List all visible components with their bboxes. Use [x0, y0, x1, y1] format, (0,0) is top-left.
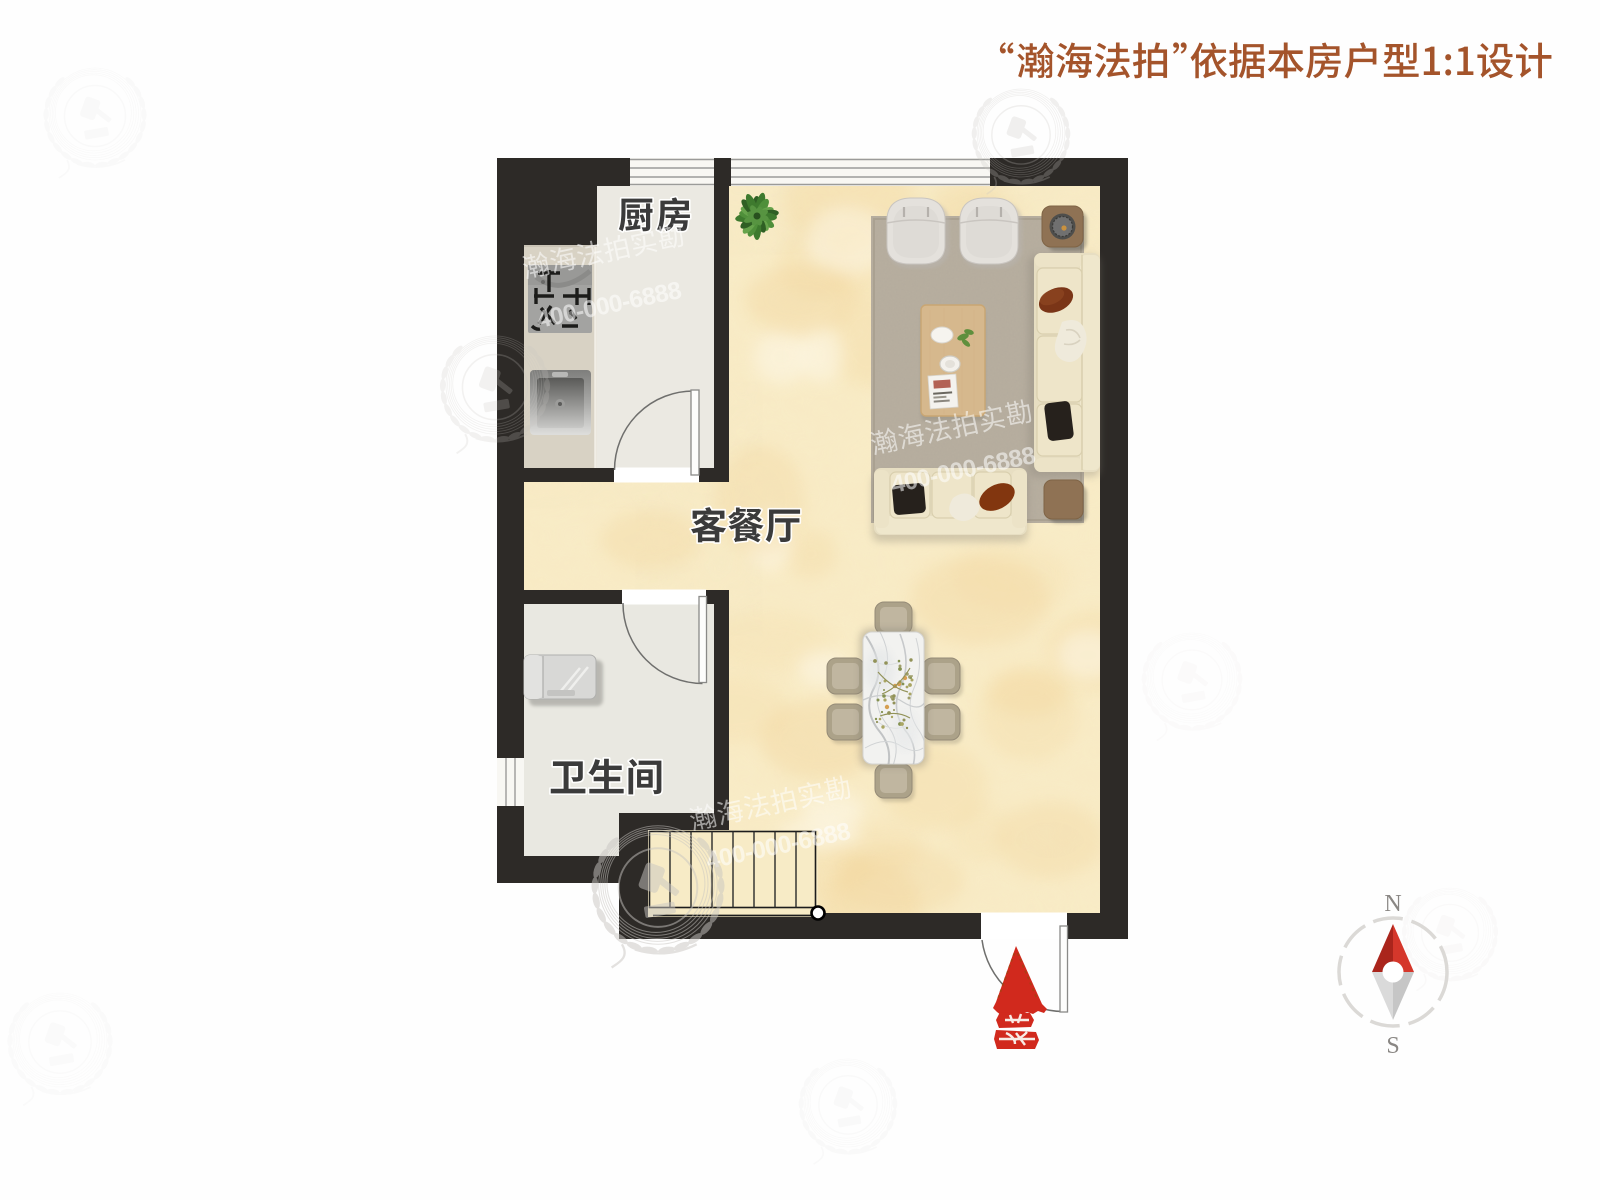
- svg-text:S: S: [1386, 1033, 1399, 1059]
- svg-text:N: N: [1384, 891, 1401, 917]
